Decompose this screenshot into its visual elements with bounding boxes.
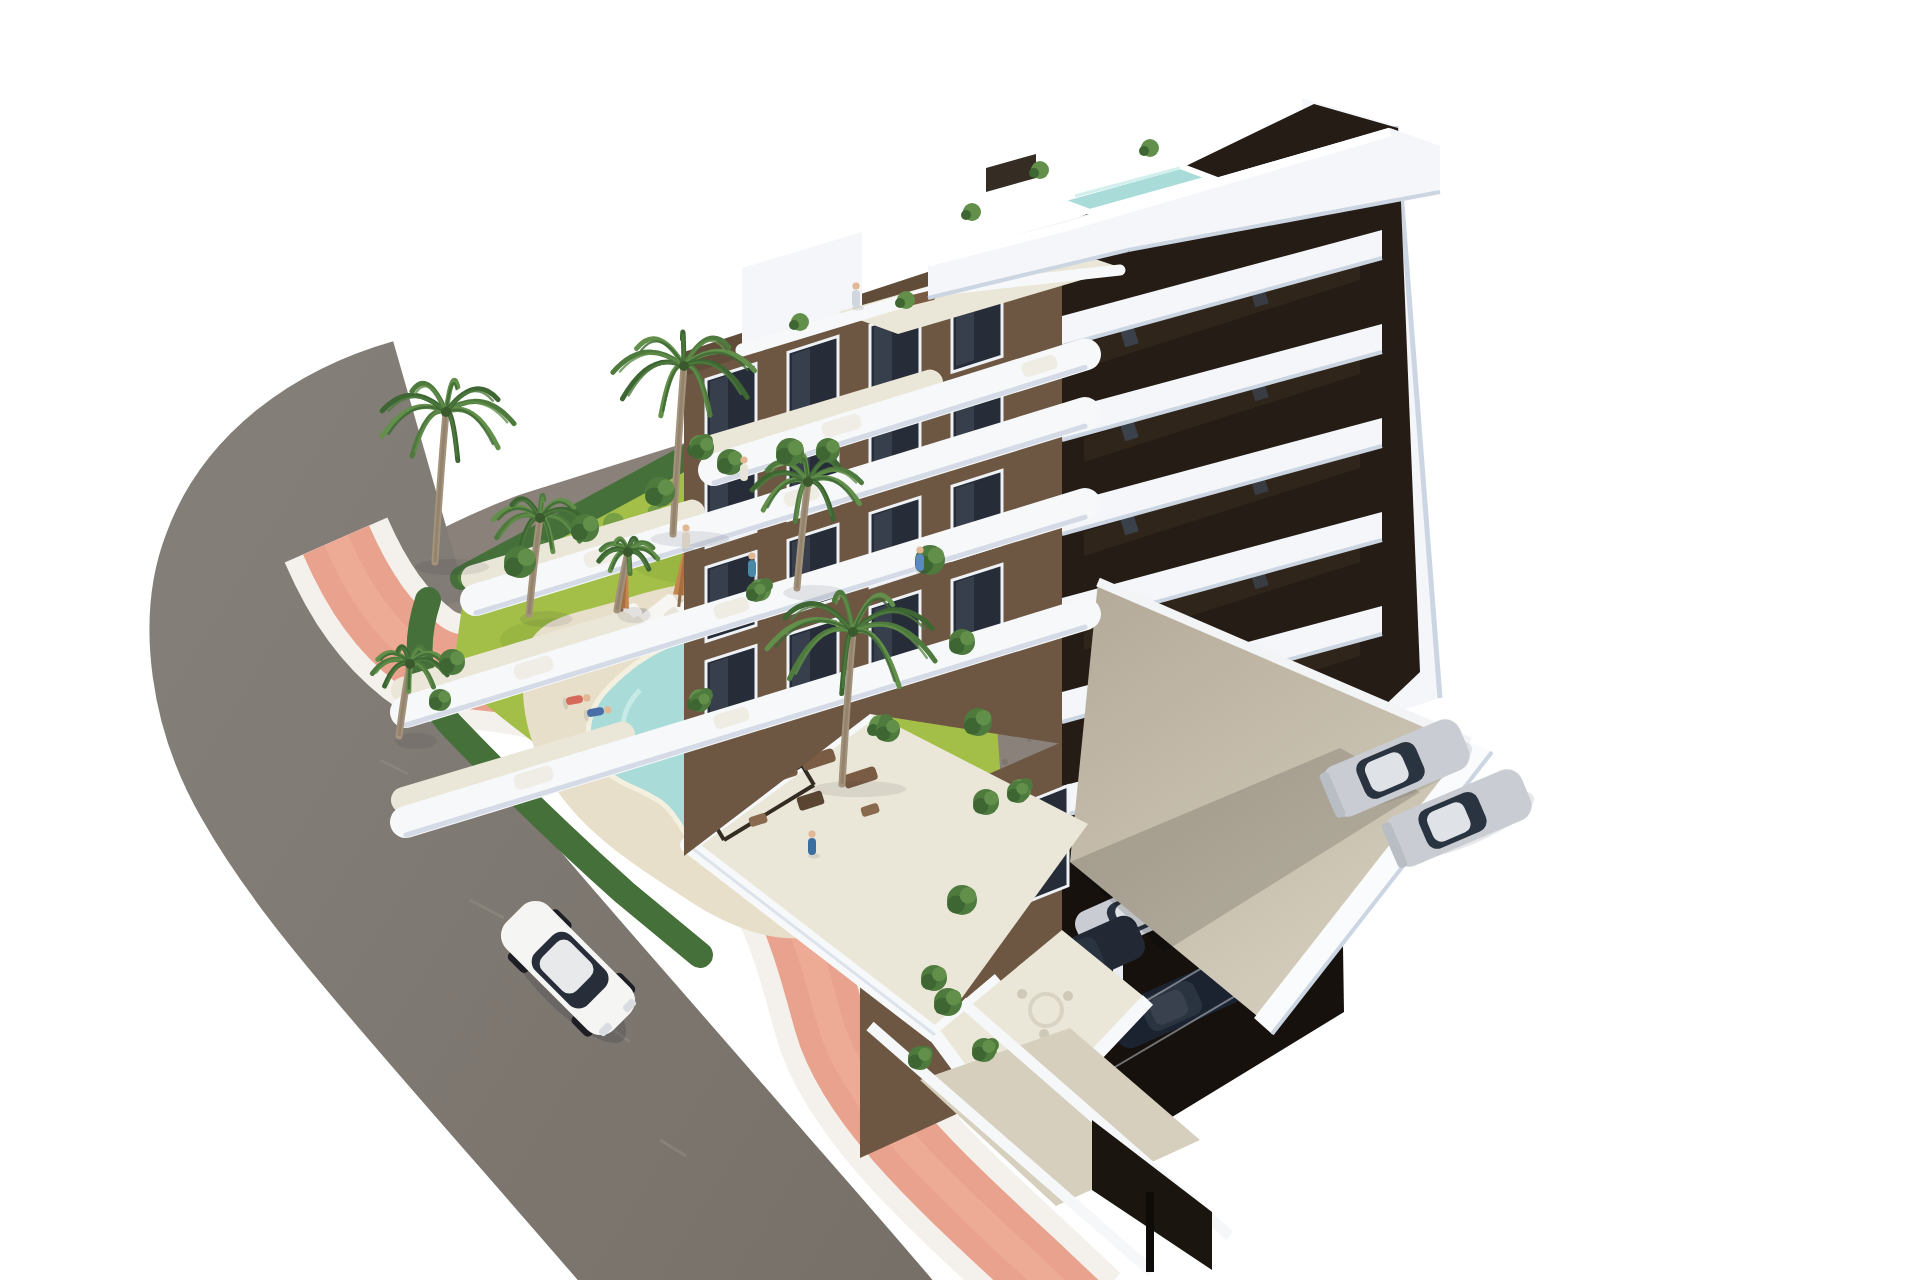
roof-pergola bbox=[986, 154, 1036, 192]
architectural-render: Aerial 3D architectural render of a mode… bbox=[0, 0, 1920, 1280]
scene-canvas bbox=[0, 0, 1920, 1280]
